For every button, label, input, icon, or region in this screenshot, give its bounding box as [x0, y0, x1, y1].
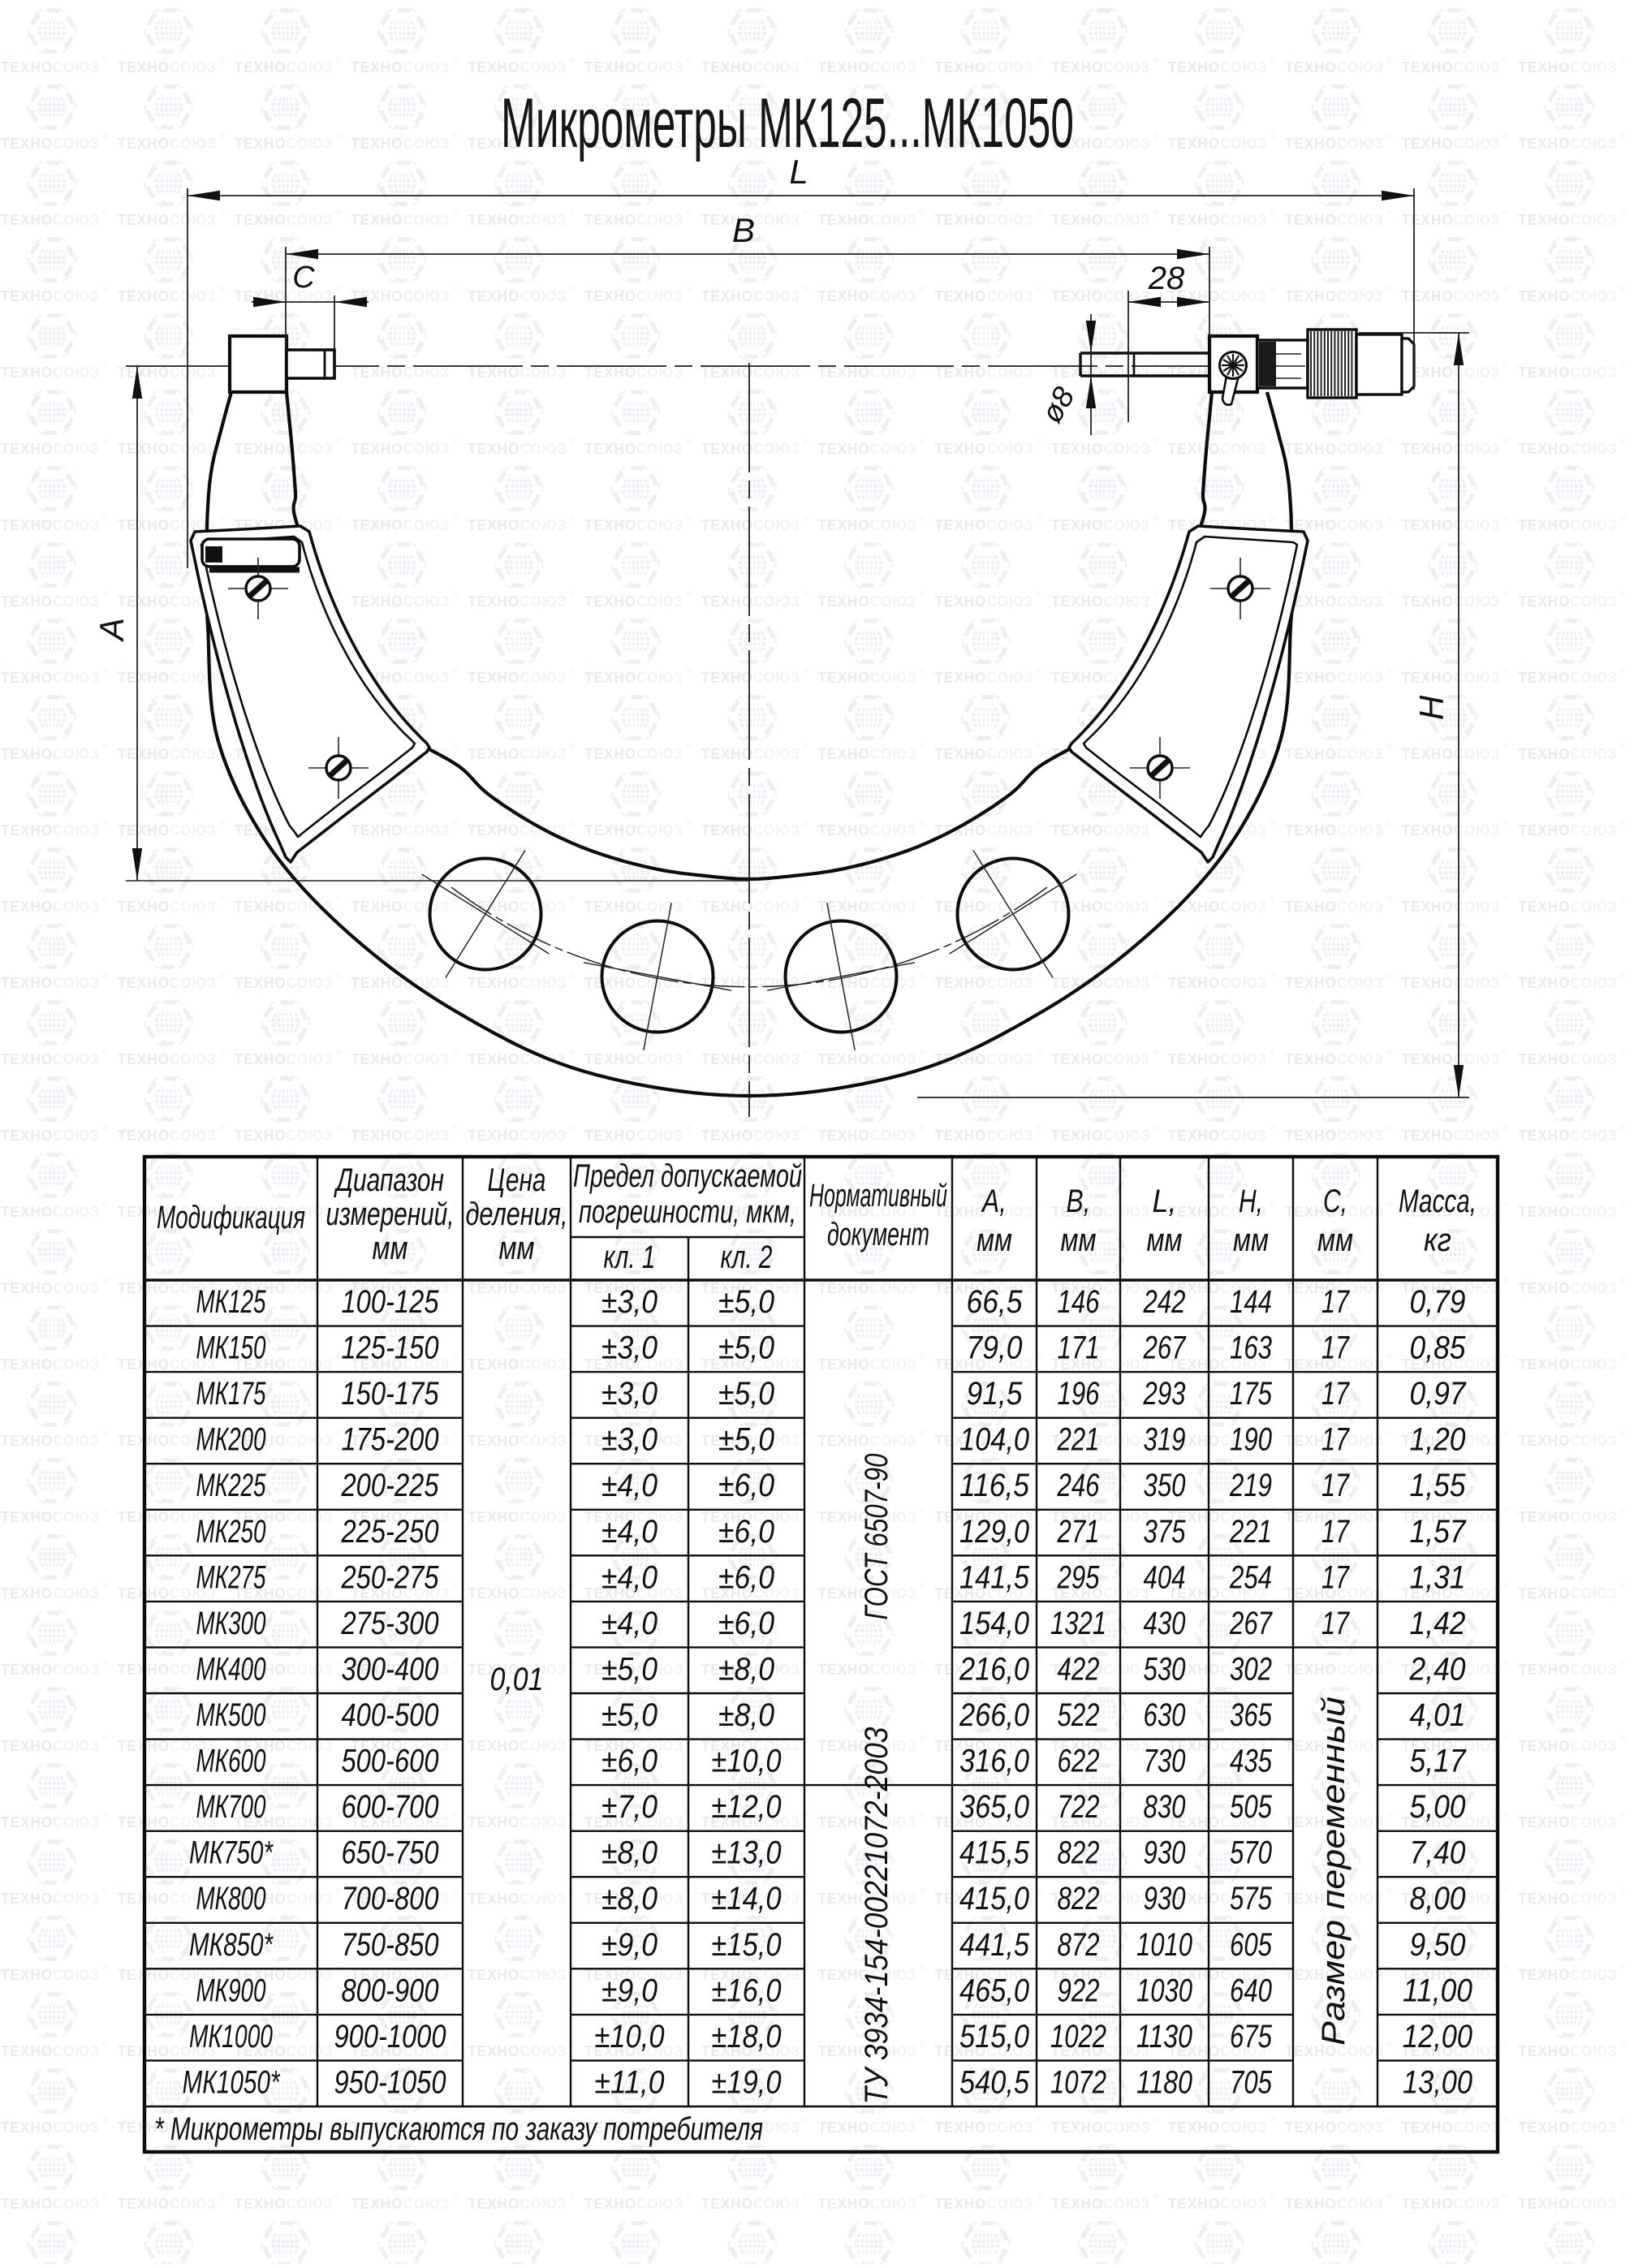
svg-text:575: 575 — [1230, 1881, 1273, 1917]
svg-text:МК150: МК150 — [196, 1330, 266, 1366]
svg-text:9,50: 9,50 — [1410, 1927, 1466, 1963]
svg-text:±8,0: ±8,0 — [718, 1697, 774, 1733]
svg-text:922: 922 — [1058, 1973, 1100, 2008]
svg-text:271: 271 — [1057, 1514, 1100, 1550]
svg-text:±9,0: ±9,0 — [601, 1927, 657, 1963]
svg-text:17: 17 — [1321, 1559, 1350, 1595]
svg-text:830: 830 — [1144, 1789, 1186, 1825]
svg-text:±11,0: ±11,0 — [595, 2064, 665, 2100]
svg-text:кл. 2: кл. 2 — [721, 1240, 773, 1275]
svg-text:900-1000: 900-1000 — [334, 2019, 446, 2055]
svg-text:B: B — [732, 211, 755, 249]
svg-text:500-600: 500-600 — [342, 1744, 439, 1779]
svg-text:154,0: 154,0 — [959, 1606, 1029, 1641]
svg-text:1,55: 1,55 — [1410, 1468, 1467, 1503]
svg-text:H: H — [1412, 695, 1451, 720]
svg-text:Предел допускаемой: Предел допускаемой — [573, 1158, 802, 1194]
svg-text:150-175: 150-175 — [342, 1376, 440, 1412]
svg-text:91,5: 91,5 — [967, 1376, 1024, 1412]
svg-text:302: 302 — [1230, 1651, 1272, 1687]
svg-text:254: 254 — [1229, 1559, 1272, 1595]
svg-text:1,31: 1,31 — [1410, 1559, 1466, 1595]
svg-text:МК300: МК300 — [196, 1606, 266, 1641]
svg-text:1022: 1022 — [1050, 2019, 1106, 2055]
svg-text:570: 570 — [1230, 1835, 1272, 1871]
svg-text:МК700: МК700 — [196, 1789, 266, 1825]
svg-text:МК225: МК225 — [196, 1468, 267, 1503]
svg-text:196: 196 — [1058, 1376, 1101, 1412]
svg-text:12,00: 12,00 — [1403, 2019, 1472, 2055]
svg-text:1321: 1321 — [1050, 1606, 1106, 1641]
svg-text:±19,0: ±19,0 — [712, 2064, 782, 2100]
svg-text:141,5: 141,5 — [959, 1559, 1030, 1595]
svg-text:±5,0: ±5,0 — [718, 1330, 774, 1366]
svg-text:319: 319 — [1144, 1422, 1186, 1458]
svg-text:1130: 1130 — [1136, 2019, 1192, 2055]
svg-text:мм: мм — [373, 1231, 408, 1266]
svg-text:погрешности, мкм,: погрешности, мкм, — [579, 1194, 796, 1230]
svg-text:430: 430 — [1144, 1606, 1186, 1641]
svg-text:522: 522 — [1058, 1697, 1100, 1733]
svg-text:±5,0: ±5,0 — [718, 1284, 774, 1320]
svg-text:0,01: 0,01 — [490, 1662, 544, 1697]
svg-text:±14,0: ±14,0 — [712, 1881, 782, 1917]
svg-text:5,00: 5,00 — [1410, 1789, 1466, 1825]
svg-text:±4,0: ±4,0 — [601, 1606, 657, 1641]
svg-text:5,17: 5,17 — [1410, 1744, 1468, 1779]
svg-text:266,0: 266,0 — [959, 1697, 1029, 1733]
svg-text:400-500: 400-500 — [342, 1697, 439, 1733]
svg-text:1,20: 1,20 — [1410, 1422, 1466, 1458]
svg-text:125-150: 125-150 — [342, 1330, 439, 1366]
svg-text:±6,0: ±6,0 — [718, 1606, 774, 1641]
svg-text:216,0: 216,0 — [959, 1651, 1029, 1687]
svg-text:13,00: 13,00 — [1403, 2064, 1472, 2100]
svg-text:175: 175 — [1230, 1376, 1273, 1412]
svg-text:175-200: 175-200 — [342, 1422, 439, 1458]
svg-text:190: 190 — [1230, 1422, 1272, 1458]
svg-text:365: 365 — [1230, 1697, 1273, 1733]
svg-text:L: L — [789, 153, 808, 191]
svg-text:950-1050: 950-1050 — [334, 2064, 446, 2100]
svg-text:±6,0: ±6,0 — [601, 1744, 657, 1779]
svg-text:МК850*: МК850* — [189, 1927, 274, 1963]
svg-text:Микрометры МК125...МК1050: Микрометры МК125...МК1050 — [501, 84, 1074, 162]
svg-text:С,: С, — [1323, 1184, 1347, 1219]
svg-text:кг: кг — [1424, 1222, 1451, 1258]
svg-text:28: 28 — [1148, 261, 1185, 296]
svg-text:17: 17 — [1321, 1468, 1350, 1503]
svg-text:МК1000: МК1000 — [189, 2019, 273, 2055]
svg-text:465,0: 465,0 — [959, 1973, 1029, 2008]
svg-text:171: 171 — [1058, 1330, 1100, 1366]
svg-text:872: 872 — [1058, 1927, 1100, 1963]
svg-text:МК400: МК400 — [196, 1651, 266, 1687]
svg-text:17: 17 — [1321, 1376, 1350, 1412]
svg-text:129,0: 129,0 — [959, 1514, 1029, 1550]
svg-text:515,0: 515,0 — [959, 2019, 1029, 2055]
svg-text:МК175: МК175 — [196, 1376, 267, 1412]
svg-text:17: 17 — [1321, 1284, 1350, 1320]
svg-text:530: 530 — [1144, 1651, 1186, 1687]
svg-text:±7,0: ±7,0 — [601, 1789, 657, 1825]
svg-text:±16,0: ±16,0 — [712, 1973, 782, 2008]
svg-text:930: 930 — [1144, 1835, 1186, 1871]
svg-text:Диапазон: Диапазон — [334, 1162, 444, 1198]
svg-text:МК125: МК125 — [196, 1284, 267, 1320]
svg-text:441,5: 441,5 — [959, 1927, 1030, 1963]
svg-text:295: 295 — [1057, 1559, 1100, 1595]
svg-text:1180: 1180 — [1136, 2064, 1192, 2100]
svg-text:8,00: 8,00 — [1410, 1881, 1466, 1917]
svg-text:722: 722 — [1058, 1789, 1100, 1825]
svg-text:мм: мм — [1147, 1222, 1183, 1258]
svg-text:±10,0: ±10,0 — [712, 1744, 782, 1779]
svg-text:293: 293 — [1143, 1376, 1186, 1412]
svg-text:300-400: 300-400 — [342, 1651, 439, 1687]
svg-text:±6,0: ±6,0 — [718, 1559, 774, 1595]
svg-text:2,40: 2,40 — [1409, 1651, 1466, 1687]
svg-text:17: 17 — [1321, 1422, 1350, 1458]
svg-text:221: 221 — [1057, 1422, 1100, 1458]
svg-text:17: 17 — [1321, 1606, 1350, 1641]
svg-text:±12,0: ±12,0 — [712, 1789, 782, 1825]
svg-text:221: 221 — [1229, 1514, 1272, 1550]
svg-text:±13,0: ±13,0 — [712, 1835, 782, 1871]
svg-text:C: C — [292, 261, 315, 295]
svg-text:мм: мм — [499, 1231, 535, 1266]
svg-text:7,40: 7,40 — [1410, 1835, 1466, 1871]
svg-text:267: 267 — [1229, 1606, 1273, 1641]
svg-text:* Микрометры выпускаются по за: * Микрометры выпускаются по заказу потре… — [154, 2111, 763, 2147]
svg-text:Н,: Н, — [1239, 1184, 1263, 1219]
svg-text:Модификация: Модификация — [157, 1200, 305, 1235]
svg-text:±4,0: ±4,0 — [601, 1559, 657, 1595]
svg-text:±5,0: ±5,0 — [718, 1376, 774, 1412]
svg-text:МК800: МК800 — [196, 1881, 266, 1917]
svg-text:Размер переменный: Размер переменный — [1316, 1697, 1352, 2046]
svg-text:375: 375 — [1144, 1514, 1187, 1550]
svg-text:0,79: 0,79 — [1410, 1284, 1466, 1320]
svg-text:МК900: МК900 — [196, 1973, 266, 2008]
svg-text:11,00: 11,00 — [1403, 1973, 1472, 2008]
svg-text:17: 17 — [1321, 1514, 1350, 1550]
svg-text:деления,: деления, — [466, 1197, 568, 1232]
svg-text:МК500: МК500 — [196, 1697, 266, 1733]
svg-text:267: 267 — [1143, 1330, 1187, 1366]
svg-text:Цена: Цена — [488, 1162, 546, 1198]
svg-text:измерений,: измерений, — [326, 1197, 455, 1232]
svg-text:МК750*: МК750* — [189, 1835, 274, 1871]
svg-text:930: 930 — [1144, 1881, 1186, 1917]
svg-text:275-300: 275-300 — [341, 1606, 439, 1641]
svg-text:0,85: 0,85 — [1410, 1330, 1467, 1366]
svg-text:L,: L, — [1153, 1184, 1177, 1219]
svg-text:640: 640 — [1230, 1973, 1272, 2008]
svg-text:МК200: МК200 — [196, 1422, 266, 1458]
svg-text:±3,0: ±3,0 — [601, 1422, 657, 1458]
svg-text:316,0: 316,0 — [959, 1744, 1029, 1779]
svg-text:225-250: 225-250 — [341, 1514, 439, 1550]
svg-text:±3,0: ±3,0 — [601, 1284, 657, 1320]
svg-text:ГОСТ 6507-90: ГОСТ 6507-90 — [859, 1454, 895, 1620]
svg-text:±6,0: ±6,0 — [718, 1514, 774, 1550]
svg-text:250-275: 250-275 — [341, 1559, 439, 1595]
svg-text:435: 435 — [1230, 1744, 1273, 1779]
svg-text:±5,0: ±5,0 — [718, 1422, 774, 1458]
svg-text:100-125: 100-125 — [342, 1284, 440, 1320]
svg-text:66,5: 66,5 — [967, 1284, 1024, 1320]
svg-text:750-850: 750-850 — [342, 1927, 439, 1963]
svg-text:116,5: 116,5 — [959, 1468, 1030, 1503]
svg-text:±8,0: ±8,0 — [601, 1881, 657, 1917]
svg-text:800-900: 800-900 — [342, 1973, 439, 2008]
svg-text:±3,0: ±3,0 — [601, 1330, 657, 1366]
svg-text:79,0: 79,0 — [967, 1330, 1023, 1366]
svg-text:415,0: 415,0 — [959, 1881, 1029, 1917]
svg-text:104,0: 104,0 — [959, 1422, 1029, 1458]
svg-text:622: 622 — [1058, 1744, 1100, 1779]
svg-text:мм: мм — [977, 1222, 1012, 1258]
svg-text:±18,0: ±18,0 — [712, 2019, 782, 2055]
svg-text:422: 422 — [1058, 1651, 1100, 1687]
svg-text:кл. 1: кл. 1 — [604, 1240, 656, 1275]
svg-text:146: 146 — [1058, 1284, 1101, 1320]
svg-text:1072: 1072 — [1050, 2064, 1106, 2100]
svg-text:МК275: МК275 — [196, 1559, 267, 1595]
svg-text:мм: мм — [1061, 1222, 1097, 1258]
svg-text:1,42: 1,42 — [1410, 1606, 1466, 1641]
svg-text:17: 17 — [1321, 1330, 1350, 1366]
svg-text:±4,0: ±4,0 — [601, 1514, 657, 1550]
svg-text:ТУ 3934-154-00221072-2003: ТУ 3934-154-00221072-2003 — [859, 1727, 895, 2105]
svg-text:200-225: 200-225 — [341, 1468, 439, 1503]
svg-text:±5,0: ±5,0 — [601, 1697, 657, 1733]
svg-text:МК600: МК600 — [196, 1744, 266, 1779]
svg-text:±15,0: ±15,0 — [712, 1927, 782, 1963]
svg-text:675: 675 — [1230, 2019, 1273, 2055]
svg-text:144: 144 — [1230, 1284, 1272, 1320]
svg-text:730: 730 — [1144, 1744, 1186, 1779]
svg-text:350: 350 — [1144, 1468, 1186, 1503]
svg-text:±9,0: ±9,0 — [601, 1973, 657, 2008]
svg-text:822: 822 — [1058, 1835, 1100, 1871]
svg-text:документ: документ — [827, 1217, 929, 1253]
svg-text:630: 630 — [1144, 1697, 1186, 1733]
svg-text:мм: мм — [1317, 1222, 1353, 1258]
svg-text:1,57: 1,57 — [1410, 1514, 1468, 1550]
svg-text:650-750: 650-750 — [342, 1835, 439, 1871]
svg-text:A: A — [93, 618, 131, 643]
svg-text:1010: 1010 — [1136, 1927, 1192, 1963]
svg-text:219: 219 — [1229, 1468, 1272, 1503]
svg-text:В,: В, — [1067, 1184, 1091, 1219]
svg-text:4,01: 4,01 — [1410, 1697, 1466, 1733]
svg-text:246: 246 — [1057, 1468, 1100, 1503]
svg-text:242: 242 — [1143, 1284, 1186, 1320]
svg-text:±10,0: ±10,0 — [595, 2019, 665, 2055]
svg-text:мм: мм — [1233, 1222, 1269, 1258]
svg-text:МК250: МК250 — [196, 1514, 266, 1550]
svg-text:505: 505 — [1230, 1789, 1273, 1825]
svg-text:±3,0: ±3,0 — [601, 1376, 657, 1412]
svg-text:365,0: 365,0 — [959, 1789, 1029, 1825]
svg-text:МК1050*: МК1050* — [183, 2064, 281, 2100]
svg-text:±5,0: ±5,0 — [601, 1651, 657, 1687]
svg-text:163: 163 — [1230, 1330, 1272, 1366]
svg-text:1030: 1030 — [1136, 1973, 1192, 2008]
svg-text:600-700: 600-700 — [342, 1789, 439, 1825]
svg-text:А,: А, — [981, 1184, 1007, 1219]
svg-text:705: 705 — [1230, 2064, 1273, 2100]
svg-text:404: 404 — [1144, 1559, 1186, 1595]
svg-text:Нормативный: Нормативный — [809, 1178, 947, 1214]
svg-text:0,97: 0,97 — [1410, 1376, 1468, 1412]
svg-text:Масса,: Масса, — [1399, 1184, 1477, 1219]
svg-text:605: 605 — [1230, 1927, 1273, 1963]
svg-text:700-800: 700-800 — [342, 1881, 439, 1917]
svg-text:±8,0: ±8,0 — [601, 1835, 657, 1871]
svg-text:415,5: 415,5 — [959, 1835, 1030, 1871]
svg-text:±4,0: ±4,0 — [601, 1468, 657, 1503]
svg-text:540,5: 540,5 — [959, 2064, 1030, 2100]
svg-text:822: 822 — [1058, 1881, 1100, 1917]
svg-text:±6,0: ±6,0 — [718, 1468, 774, 1503]
svg-text:±8,0: ±8,0 — [718, 1651, 774, 1687]
